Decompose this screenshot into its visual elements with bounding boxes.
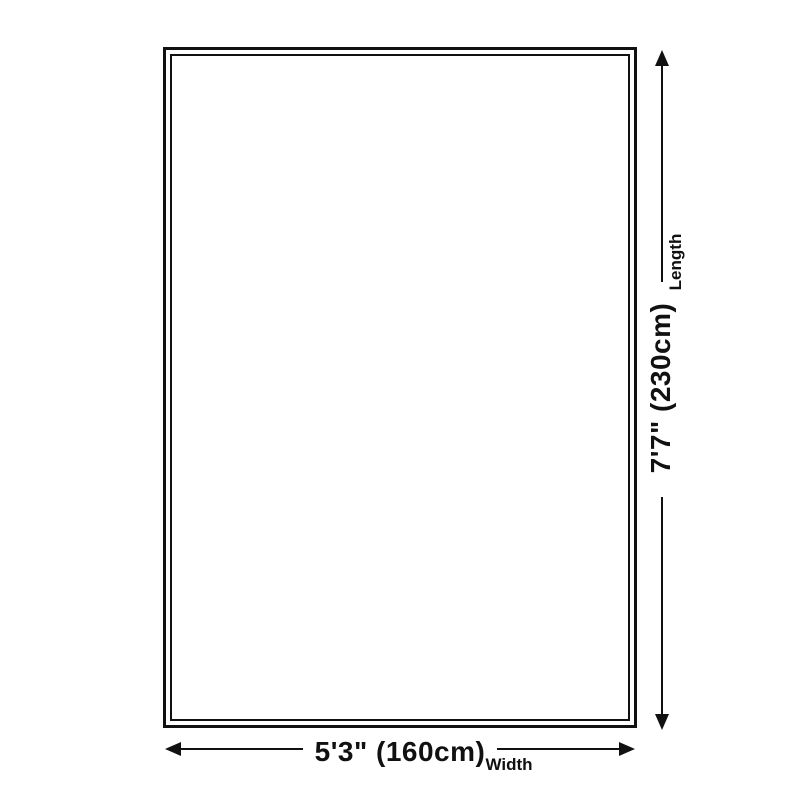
length-arrow-line-bottom [661,497,663,715]
length-arrowhead-down-icon [655,714,669,730]
length-arrow-line-top [661,65,663,282]
width-arrowhead-right-icon [619,742,635,756]
length-value: 7'7" (230cm) [645,303,677,474]
rug-outline-outer [163,47,637,728]
width-caption: Width [485,755,532,775]
length-caption: Length [666,234,686,291]
width-arrowhead-left-icon [165,742,181,756]
dimension-diagram: Length 7'7" (230cm) 5'3" (160cm) Width [0,0,800,800]
rug-outline-inner [170,54,630,721]
width-arrow-line-left [180,748,303,750]
width-value: 5'3" (160cm) [315,736,486,768]
length-arrowhead-up-icon [655,50,669,66]
width-arrow-line-right [497,748,620,750]
